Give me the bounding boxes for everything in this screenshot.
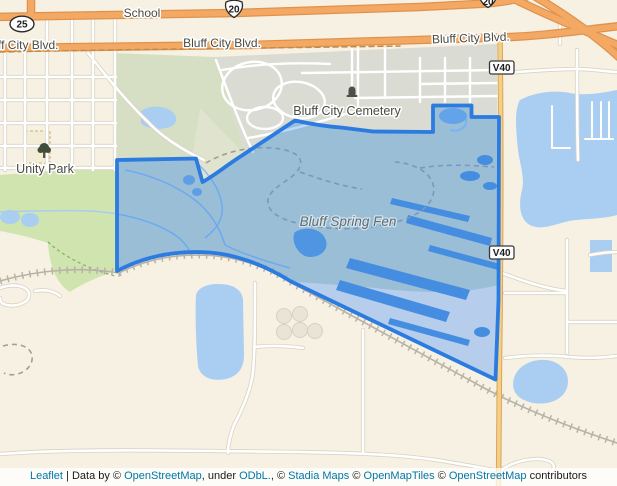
openstreetmap-link-2[interactable]: OpenStreetMap: [449, 470, 527, 482]
label-blvd-right: Bluff City Blvd.: [432, 30, 510, 47]
big-pond: [196, 284, 244, 380]
map-container[interactable]: School ff City Blvd. Bluff City Blvd. Bl…: [0, 0, 617, 486]
label-unity-park: Unity Park: [16, 162, 74, 176]
openstreetmap-link-1[interactable]: OpenStreetMap: [124, 470, 202, 482]
attribution-text: , under: [202, 470, 239, 482]
map-canvas[interactable]: School ff City Blvd. Bluff City Blvd. Bl…: [0, 0, 617, 486]
leaflet-link[interactable]: Leaflet: [30, 470, 63, 482]
attribution-text: ©: [435, 470, 449, 482]
label-fen: Bluff Spring Fen: [300, 214, 397, 229]
v40-number-lower: V40: [493, 248, 511, 259]
label-school: School: [124, 6, 161, 20]
label-blvd-mid: Bluff City Blvd.: [183, 36, 261, 50]
label-blvd-left: ff City Blvd.: [0, 38, 58, 52]
openmaptiles-link[interactable]: OpenMapTiles: [364, 470, 435, 482]
stadia-maps-link[interactable]: Stadia Maps: [288, 470, 349, 482]
route-25-number: 25: [16, 20, 28, 31]
attribution-text: contributors: [527, 470, 588, 482]
route-25-shield: 25: [10, 16, 34, 32]
park-pond-2: [21, 213, 39, 227]
label-cemetery: Bluff City Cemetery: [293, 104, 401, 118]
route-20-number-top: 20: [228, 5, 240, 16]
odbl-link[interactable]: ODbL.: [239, 470, 271, 482]
attribution-text: , ©: [271, 470, 288, 482]
route-20-number-right: 20: [482, 0, 494, 8]
v40-shield-lower: V40: [490, 246, 515, 259]
attribution-text: ©: [349, 470, 363, 482]
v40-number-upper: V40: [493, 63, 511, 74]
attribution-text: | Data by ©: [63, 470, 124, 482]
attribution-bar: Leaflet | Data by © OpenStreetMap, under…: [0, 468, 617, 486]
v40-shield-upper: V40: [490, 61, 515, 74]
